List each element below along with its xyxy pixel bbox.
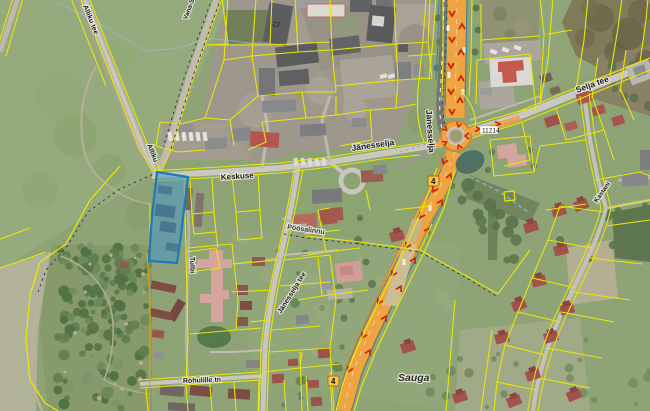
svg-text:11214: 11214 — [482, 128, 500, 135]
svg-text:Rohulille tn: Rohulille tn — [183, 377, 221, 385]
svg-text:Tulbi: Tulbi — [188, 257, 196, 273]
svg-text:4: 4 — [431, 177, 436, 186]
svg-text:Sauga: Sauga — [398, 372, 430, 384]
svg-text:22: 22 — [272, 21, 281, 29]
svg-text:4: 4 — [331, 377, 336, 386]
